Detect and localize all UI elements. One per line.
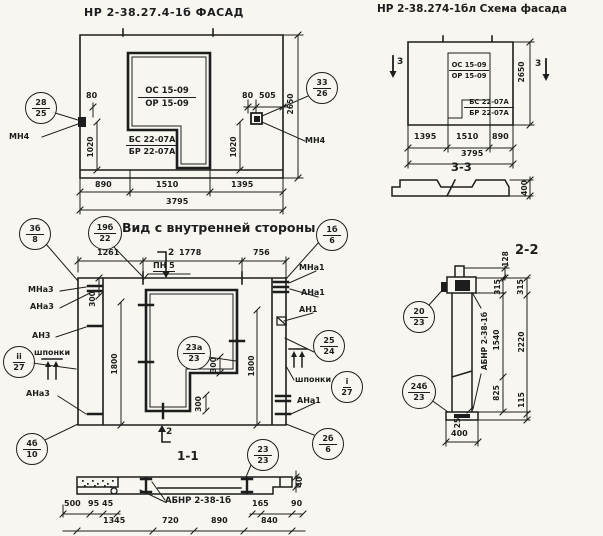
label-abnr-2-2: АБНР 2-38-1б (478, 301, 490, 381)
callout-28-25: 28 25 (25, 92, 57, 124)
section-2-mark-top: 2 (168, 249, 174, 258)
dim-80-left: 80 (86, 92, 97, 100)
label-shponki-right: шпонки (295, 376, 331, 384)
dim-890-schema: 890 (492, 133, 509, 141)
dim-1261: 1261 (97, 249, 119, 257)
label-ana3-bottom: АНа3 (26, 390, 50, 398)
dim-1395: 1395 (231, 181, 253, 189)
label-an1: АН1 (299, 306, 317, 314)
dim-25: 25 (451, 401, 463, 445)
dim-1800-left: 1800 (108, 342, 120, 386)
dim-1345: 1345 (103, 517, 125, 525)
callout-23-23: 23 23 (247, 439, 279, 471)
callout-ii-27: ii 27 (3, 346, 35, 378)
dim-300-bottom: 300 (192, 382, 204, 426)
callout-3b-8: 3б 8 (19, 218, 51, 250)
section-3-mark-left: 3 (397, 58, 403, 67)
pn5-label: ПН 5 (153, 262, 175, 272)
facade-window-mark: ОС 15-09 ОР 15-09 (138, 86, 196, 109)
schema-panel-mark: БС 22-07А БР 22-07А (464, 98, 514, 117)
dim-1395-schema: 1395 (414, 133, 436, 141)
dim-840: 840 (261, 517, 278, 525)
dim-45: 45 (102, 500, 113, 508)
callout-24b-23: 24б 23 (402, 375, 436, 409)
callout-2b-6: 2б 6 (312, 428, 344, 460)
dim-1778: 1778 (179, 249, 201, 257)
facade-title: НР 2-38.27.4-1б ФАСАД (84, 7, 244, 18)
label-an3: АН3 (32, 332, 50, 340)
dim-756: 756 (253, 249, 270, 257)
dim-1510: 1510 (156, 181, 178, 189)
section-2-mark-bottom: 2 (166, 428, 172, 437)
callout-25-24: 25 24 (313, 330, 345, 362)
dim-1800-right: 1800 (245, 344, 257, 388)
dim-95: 95 (88, 500, 99, 508)
callout-23a-23: 23а 23 (177, 336, 211, 370)
dim-1540: 1540 (490, 318, 502, 362)
callout-1b-6: 1б 6 (316, 219, 348, 251)
dim-720: 720 (162, 517, 179, 525)
dim-165: 165 (252, 500, 269, 508)
dim-315-inner: 315 (491, 265, 503, 309)
dim-2650-schema: 2650 (515, 50, 527, 94)
dim-40: 40 (293, 460, 305, 504)
dim-890-s11: 890 (211, 517, 228, 525)
dim-2650-facade: 2650 (284, 82, 296, 126)
label-mna3: МНа3 (28, 286, 54, 294)
dim-825: 825 (490, 371, 502, 415)
dim-400-section33: 400 (518, 166, 530, 210)
dim-505: 505 (259, 92, 276, 100)
dim-400-base: 400 (451, 430, 468, 438)
callout-19b-22: 19б 22 (88, 216, 122, 250)
anchor-label-mn4-right: МН4 (305, 137, 325, 145)
dim-3795-schema: 3795 (461, 150, 483, 158)
label-ana1-bottom: АНа1 (297, 397, 321, 405)
label-shponki-left: шпонки (34, 349, 70, 357)
section-1-1-title: 1-1 (177, 450, 199, 462)
dim-115: 115 (515, 378, 527, 422)
callout-33-26: 33 26 (306, 72, 338, 104)
anchor-label-mn4-left: МН4 (9, 133, 29, 141)
label-abnr-1-1: АБНР 2-38-1б (165, 497, 231, 506)
section-3-mark-right: 3 (535, 60, 541, 69)
label-ana1: АНа1 (301, 289, 325, 297)
schema-window-mark: ОС 15-09 ОР 15-09 (449, 61, 489, 80)
dim-890: 890 (95, 181, 112, 189)
dim-315-outer: 315 (514, 265, 526, 309)
dim-80-right: 80 (242, 92, 253, 100)
facade-panel-mark: БС 22-07А БР 22-07А (126, 135, 178, 156)
label-mna1: МНа1 (299, 264, 325, 272)
dim-300-top: 300 (86, 277, 98, 321)
dim-1510-schema: 1510 (456, 133, 478, 141)
dim-2220: 2220 (515, 320, 527, 364)
callout-4b-10: 4б 10 (16, 433, 48, 465)
section-3-3-title: 3-3 (451, 162, 472, 174)
callout-i-27: i 27 (331, 371, 363, 403)
dim-3795-facade: 3795 (166, 198, 188, 206)
label-ana3: АНа3 (30, 303, 54, 311)
dim-500: 500 (64, 500, 81, 508)
schema-title: НР 2-38.274-1бл Схема фасада (377, 4, 567, 15)
inner-view-title: Вид с внутренней стороны (122, 222, 315, 235)
dim-1020-right: 1020 (227, 125, 239, 169)
blueprint-canvas: НР 2-38.27.4-1б ФАСАД НР 2-38.274-1бл Сх… (0, 0, 603, 536)
section-2-2-title: 2-2 (515, 244, 539, 257)
callout-20-23: 20 23 (403, 301, 435, 333)
dim-1020-left: 1020 (84, 125, 96, 169)
